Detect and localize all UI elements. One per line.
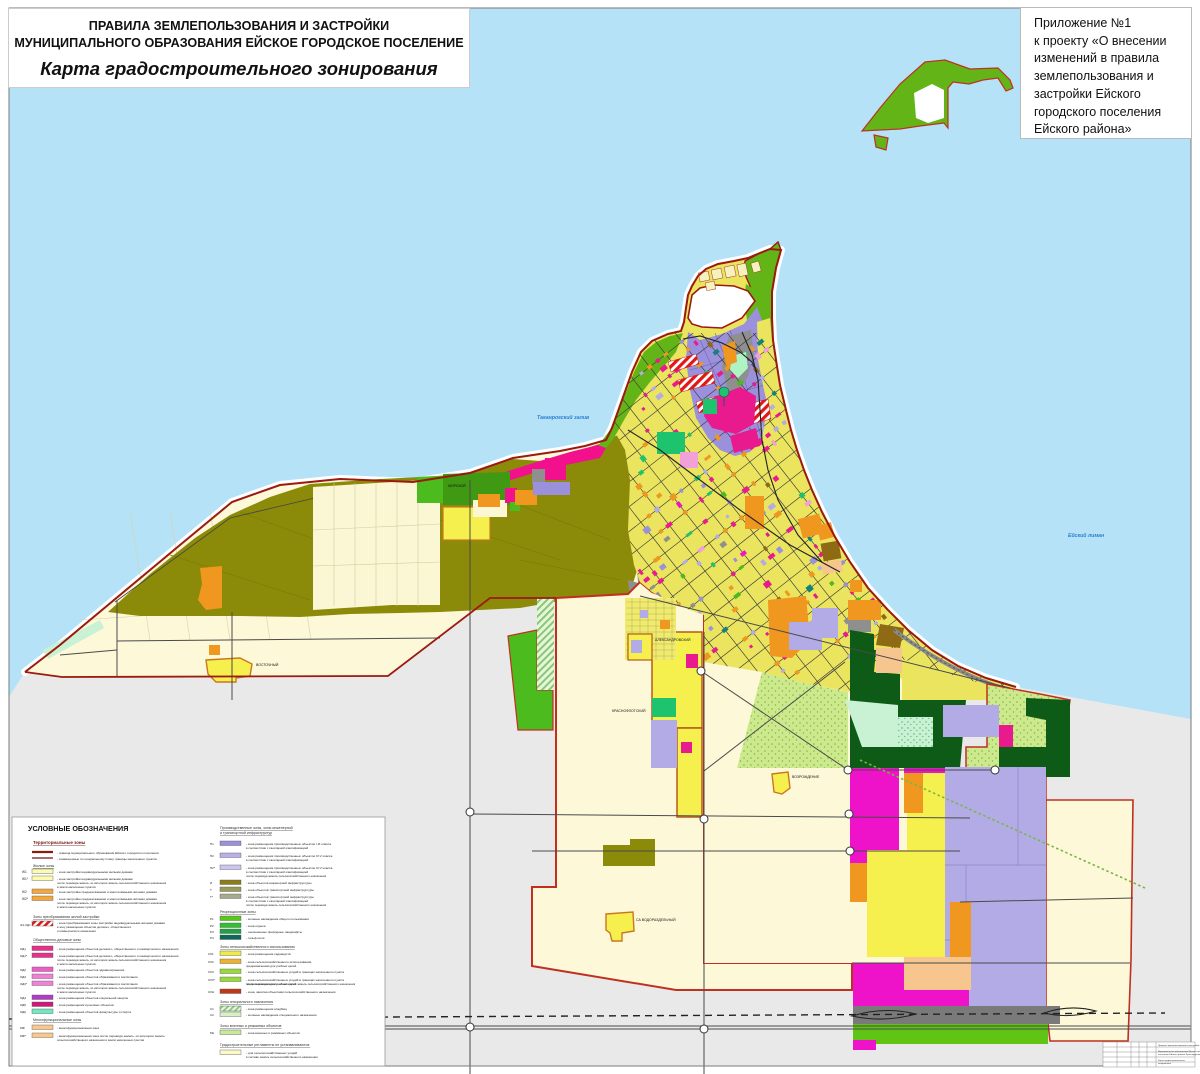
svg-text:- зона размещения объектов обр: - зона размещения объектов образования и… — [57, 975, 138, 979]
svg-text:МФ*: МФ* — [20, 1034, 27, 1038]
svg-text:- зона размещения культовых об: - зона размещения культовых объектов — [57, 1003, 114, 1007]
svg-text:зонирования: зонирования — [1158, 1063, 1172, 1065]
svg-text:- граница муниципального образ: - граница муниципального образования Ейс… — [57, 851, 159, 855]
svg-text:в земли населенных пунктов: в земли населенных пунктов — [57, 905, 96, 909]
svg-text:П2: П2 — [210, 854, 214, 858]
svg-text:- зеленые насаждения общего по: - зеленые насаждения общего пользования — [246, 917, 309, 921]
svg-text:Многофункциональные зоны: Многофункциональные зоны — [33, 1018, 82, 1022]
svg-text:ОД1*: ОД1* — [20, 954, 28, 958]
svg-text:- гольф-поля: - гольф-поля — [246, 936, 265, 940]
svg-text:ОД5: ОД5 — [20, 1003, 26, 1007]
svg-text:- зона размещения кладбищ: - зона размещения кладбищ — [246, 1007, 287, 1011]
svg-text:ОД4: ОД4 — [20, 996, 26, 1000]
svg-text:П2*: П2* — [210, 866, 216, 870]
svg-text:в земли населенных пунктов: в земли населенных пунктов — [57, 990, 96, 994]
svg-text:- многофункциональная зона: - многофункциональная зона — [57, 1026, 99, 1030]
svg-text:и коммерческого назначения: и коммерческого назначения — [57, 929, 96, 933]
svg-text:в соответствии с санитарной кл: в соответствии с санитарной классификаци… — [246, 858, 308, 862]
svg-text:- озелененные природные ландша: - озелененные природные ландшафты — [246, 930, 303, 934]
svg-text:РЕ: РЕ — [210, 1031, 214, 1035]
svg-text:Жилые зоны: Жилые зоны — [33, 864, 55, 868]
svg-text:- зона застройки индивидуальны: - зона застройки индивидуальными жилыми … — [57, 870, 133, 874]
svg-text:- зона застройки среднеэтажным: - зона застройки среднеэтажными и многоэ… — [57, 890, 157, 894]
svg-text:С2: С2 — [210, 1013, 214, 1017]
svg-text:после перевода земель, из кате: после перевода земель, из категории земе… — [246, 982, 356, 986]
svg-text:- зона размещения объектов соц: - зона размещения объектов социальной за… — [57, 996, 129, 1000]
svg-text:- зона сельскохозяйственных уг: - зона сельскохозяйственных угодий в гра… — [246, 970, 344, 974]
svg-text:Общественно-деловые зоны: Общественно-деловые зоны — [33, 938, 81, 942]
svg-text:сельскохозяйственного назначен: сельскохозяйственного назначения в земли… — [57, 1038, 144, 1042]
svg-text:Зоны военных и режимных объект: Зоны военных и режимных объектов — [220, 1024, 282, 1028]
svg-text:Р1: Р1 — [210, 917, 214, 921]
svg-text:Производственные зоны, зоны ин: Производственные зоны, зоны инженерной — [220, 826, 293, 830]
svg-text:Территориальные зоны: Территориальные зоны — [33, 840, 86, 845]
svg-text:предназначенная для учебных це: предназначенная для учебных целей — [246, 964, 297, 968]
svg-text:Карта градостроительного: Карта градостроительного — [1158, 1060, 1186, 1062]
svg-text:Ж1-ОД1: Ж1-ОД1 — [20, 923, 31, 927]
svg-text:- зона размещения объектов физ: - зона размещения объектов физкультуры и… — [57, 1010, 131, 1014]
svg-text:- зона размещения объектов дел: - зона размещения объектов делового, общ… — [57, 947, 179, 951]
svg-text:- зеленые насаждения специальн: - зеленые насаждения специального назнач… — [246, 1013, 317, 1017]
svg-text:Зоны преобразования жилой заст: Зоны преобразования жилой застройки — [33, 915, 99, 919]
svg-text:- зона, занятая объектами сель: - зона, занятая объектами сельскохозяйст… — [246, 990, 336, 994]
svg-text:МФ: МФ — [20, 1026, 25, 1030]
svg-text:УСЛОВНЫЕ ОБОЗНАЧЕНИЯ: УСЛОВНЫЕ ОБОЗНАЧЕНИЯ — [28, 824, 128, 833]
svg-text:Ж2*: Ж2* — [22, 897, 29, 901]
svg-text:после перевода земель сельскох: после перевода земель сельскохозяйственн… — [246, 874, 327, 878]
svg-text:И: И — [210, 881, 212, 885]
svg-text:ОД6: ОД6 — [20, 1010, 26, 1014]
svg-text:Ж1*: Ж1* — [22, 877, 29, 881]
svg-text:СХ3: СХ3 — [208, 970, 214, 974]
svg-text:Р2: Р2 — [210, 924, 214, 928]
svg-text:- зона размещения садоводств: - зона размещения садоводств — [246, 952, 291, 956]
svg-text:ОД1: ОД1 — [20, 947, 26, 951]
svg-text:после перевода земель сельскох: после перевода земель сельскохозяйственн… — [246, 903, 327, 907]
svg-text:Р3: Р3 — [210, 930, 214, 934]
svg-text:поселение Ейского района Красн: поселение Ейского района Краснодарского … — [1158, 1053, 1200, 1056]
svg-text:в соответствии с санитарной кл: в соответствии с санитарной классификаци… — [246, 846, 308, 850]
svg-text:С1: С1 — [210, 1007, 214, 1011]
svg-text:Зоны сельскохозяйственного исп: Зоны сельскохозяйственного использования — [220, 945, 295, 949]
svg-text:Правила землепользования и зас: Правила землепользования и застройки — [1158, 1044, 1200, 1047]
svg-text:Ж1: Ж1 — [22, 870, 27, 874]
svg-text:- совмещенные по генеральному: - совмещенные по генеральному плану гран… — [57, 857, 157, 861]
svg-text:в составе земель сельскохозяйс: в составе земель сельскохозяйственного н… — [246, 1055, 318, 1059]
svg-text:СХ2: СХ2 — [208, 960, 214, 964]
svg-text:Ж2: Ж2 — [22, 890, 27, 894]
svg-text:ОД3: ОД3 — [20, 975, 26, 979]
svg-text:Градостроительные регламенты н: Градостроительные регламенты не устанавл… — [220, 1043, 310, 1047]
svg-text:и транспортной инфраструктур: и транспортной инфраструктур — [220, 831, 272, 835]
svg-text:- зона отдыха: - зона отдыха — [246, 924, 266, 928]
svg-text:в земли населенных пунктов: в земли населенных пунктов — [57, 885, 96, 889]
svg-text:- зона военных и режимных объе: - зона военных и режимных объектов — [246, 1031, 300, 1035]
svg-text:Т: Т — [210, 888, 212, 892]
svg-text:- зона объектов инженерной инф: - зона объектов инженерной инфраструктур… — [246, 881, 312, 885]
svg-text:СХ3*: СХ3* — [208, 978, 216, 982]
svg-text:- зона объектов транспортной и: - зона объектов транспортной инфраструкт… — [246, 888, 315, 892]
svg-text:П1: П1 — [210, 842, 214, 846]
svg-text:Зоны специального назначения: Зоны специального назначения — [220, 1000, 273, 1004]
svg-text:Рекреационные зоны: Рекреационные зоны — [220, 910, 256, 914]
svg-text:- зона размещения объектов здр: - зона размещения объектов здравоохранен… — [57, 968, 125, 972]
svg-text:в земли населенных пунктов: в земли населенных пунктов — [57, 962, 96, 966]
svg-text:СХ1: СХ1 — [208, 952, 214, 956]
svg-text:Р4: Р4 — [210, 936, 214, 940]
svg-text:ОД2: ОД2 — [20, 968, 26, 972]
svg-text:Муниципальное образование Ейск: Муниципальное образование Ейское городск… — [1158, 1050, 1200, 1053]
svg-text:СХН: СХН — [208, 990, 214, 994]
svg-text:ОД3*: ОД3* — [20, 982, 28, 986]
